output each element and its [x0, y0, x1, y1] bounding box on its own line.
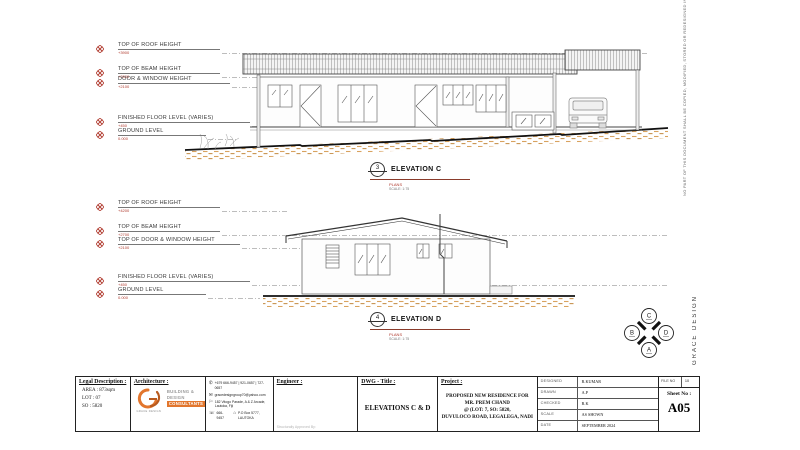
- engineer-cell: Engineer : Structurally Approved By:: [274, 377, 359, 431]
- project-line: MR. PREM CHAND: [441, 401, 534, 408]
- file-no-label: FILE NO: [659, 377, 682, 387]
- meta-row: DATE SEPTEMBER 2024: [538, 421, 659, 431]
- pobox-icon: ⌂: [233, 411, 236, 416]
- architecture-header: Architecture :: [134, 379, 202, 385]
- datum-level-row: DOOR & WINDOW HEIGHT+2100: [96, 76, 230, 90]
- legal-header: Legal Description :: [79, 379, 127, 385]
- elevation-scale: SCALE: 1:75: [389, 337, 470, 342]
- contact-phone: +679 666-9457 | 921-0657 | 727-0657: [215, 381, 270, 390]
- architecture-contacts-cell: ✆ +679 666-9457 | 921-0657 | 727-0657 ✉ …: [206, 377, 274, 431]
- datum-level-row: FINISHED FLOOR LEVEL (VARIES)+450: [96, 274, 250, 288]
- carport-roof: [565, 50, 640, 70]
- location-icon: ⚐: [209, 400, 213, 405]
- title-block: Legal Description : AREA : 873sqm LOT : …: [75, 376, 700, 432]
- sheet-no-label: Sheet No :: [659, 391, 699, 397]
- datum-level-row: TOP OF BEAM HEIGHT+2700: [96, 224, 220, 238]
- compass-letter-bottom: A: [647, 348, 651, 354]
- elevation-title: ELEVATION C: [391, 166, 441, 173]
- engineer-header: Engineer :: [277, 379, 355, 385]
- step: [490, 286, 512, 294]
- callout-number: 3: [376, 165, 379, 171]
- meta-row: SCALE AS SHOWN: [538, 410, 659, 421]
- meta-table-cell: DESIGNED R.KUMAR DRAWN A.P CHECKED R.K S…: [538, 377, 660, 431]
- carport-post: [636, 70, 639, 130]
- level-leader-line: [208, 298, 260, 299]
- callout-number-bubble: 3: [370, 162, 385, 177]
- phone-icon: ✆: [209, 381, 213, 386]
- email-icon: ✉: [209, 393, 213, 398]
- elevation-title: ELEVATION D: [391, 316, 441, 323]
- meta-row: DRAWN A.P: [538, 388, 659, 399]
- project-line: @ (LOT: 7, SO: 5820,: [441, 408, 534, 415]
- file-no-value: 10: [682, 377, 699, 387]
- contact-email: gracedesigngroup70@yahoo.com: [215, 393, 266, 398]
- elevation-key-compass-icon: C B D A: [622, 306, 676, 360]
- datum-marker-icon: [96, 118, 104, 126]
- project-line: DUVULOCO ROAD, LEGALEGA, NADI: [441, 415, 534, 422]
- meta-label: DATE: [538, 421, 578, 431]
- meta-value: AS SHOWN: [578, 410, 659, 420]
- meta-label: DRAWN: [538, 388, 578, 398]
- level-value: +4200: [118, 208, 220, 214]
- fax-icon: ☏: [209, 411, 215, 416]
- meta-value: R.K: [578, 399, 659, 409]
- datum-marker-icon: [96, 240, 104, 248]
- contact-pobox: P.O Box 5777, LAUTOKA: [238, 411, 270, 420]
- sheet-no-value: A05: [659, 400, 699, 416]
- contact-row: ⚐ 182 Vitogo Parade, A & Z Arcade, Lauto…: [209, 400, 270, 409]
- compass-letter-left: B: [630, 331, 634, 337]
- level-value: 0.000: [118, 136, 206, 142]
- legal-so: SO : 5820: [79, 403, 127, 411]
- architecture-logo: GRACE DESIGN: [134, 387, 164, 413]
- drawing-sheet: TOP OF ROOF HEIGHT+3900 TOP OF BEAM HEIG…: [0, 0, 800, 450]
- level-label: TOP OF DOOR & WINDOW HEIGHT: [118, 237, 240, 245]
- meta-label: CHECKED: [538, 399, 578, 409]
- datum-level-row: TOP OF DOOR & WINDOW HEIGHT+2100: [96, 237, 240, 251]
- level-label: TOP OF ROOF HEIGHT: [118, 200, 220, 208]
- earth-hatch: [263, 297, 575, 307]
- meta-label: SCALE: [538, 410, 578, 420]
- legal-lot: LOT : 07: [79, 395, 127, 403]
- elevation-c-drawing: [180, 45, 680, 160]
- level-value: 0.000: [118, 295, 206, 301]
- level-value: +2100: [118, 84, 230, 90]
- level-label: GROUND LEVEL: [118, 287, 206, 295]
- grace-design-logo-icon: [134, 387, 164, 409]
- level-value: +3900: [118, 50, 220, 56]
- dwg-title: ELEVATIONS C & D: [361, 387, 434, 429]
- level-label: TOP OF BEAM HEIGHT: [118, 66, 220, 74]
- level-label: GROUND LEVEL: [118, 128, 206, 136]
- elevation-scale: SCALE: 1:75: [389, 187, 470, 192]
- project-cell: Project : PROPOSED NEW RESIDENCE FOR MR.…: [438, 377, 538, 431]
- legal-area: AREA : 873sqm: [79, 387, 127, 395]
- callout-number: 4: [376, 315, 379, 321]
- copyright-note: NO PART OF THIS DOCUMENT SHALL BE COPIED…: [682, 4, 687, 196]
- engineer-footnote: Structurally Approved By:: [277, 425, 355, 429]
- contact-row: ✉ gracedesigngroup70@yahoo.com: [209, 393, 270, 398]
- project-line: PROPOSED NEW RESIDENCE FOR: [441, 394, 534, 401]
- elevation-d-drawing: [255, 210, 590, 310]
- meta-row: DESIGNED R.KUMAR: [538, 377, 659, 388]
- car: [569, 98, 607, 128]
- contact-row: ✆ +679 666-9457 | 921-0657 | 727-0657: [209, 381, 270, 390]
- project-header: Project :: [441, 379, 534, 385]
- datum-marker-icon: [96, 290, 104, 298]
- elevation-c-callout: 3 ELEVATION C PLANS SCALE: 1:75: [370, 162, 470, 192]
- datum-marker-icon: [96, 227, 104, 235]
- sheet-number-cell: FILE NO 10 Sheet No : A05: [659, 377, 699, 431]
- level-label: FINISHED FLOOR LEVEL (VARIES): [118, 115, 250, 123]
- datum-level-row: GROUND LEVEL0.000: [96, 128, 206, 142]
- datum-level-row: GROUND LEVEL0.000: [96, 287, 206, 301]
- compass-letter-top: C: [647, 314, 652, 320]
- datum-marker-icon: [96, 45, 104, 53]
- logo-caption: GRACE DESIGN: [136, 410, 161, 413]
- post: [257, 75, 260, 147]
- contact-fax: 666-9457: [216, 411, 227, 420]
- meta-value: A.P: [578, 388, 659, 398]
- level-label: DOOR & WINDOW HEIGHT: [118, 76, 230, 84]
- datum-marker-icon: [96, 203, 104, 211]
- architecture-cell: Architecture : GRACE DESIGN BUILDING & D…: [131, 377, 206, 431]
- datum-level-row: FINISHED FLOOR LEVEL (VARIES)+450: [96, 115, 250, 129]
- architecture-tagline: BUILDING & DESIGN CONSULTANTS: [167, 389, 205, 407]
- project-description: PROPOSED NEW RESIDENCE FOR MR. PREM CHAN…: [441, 387, 534, 429]
- level-label: TOP OF BEAM HEIGHT: [118, 224, 220, 232]
- file-number-row: FILE NO 10: [659, 377, 699, 388]
- datum-marker-icon: [96, 277, 104, 285]
- datum-marker-icon: [96, 131, 104, 139]
- meta-label: DESIGNED: [538, 377, 578, 387]
- legal-description-cell: Legal Description : AREA : 873sqm LOT : …: [76, 377, 131, 431]
- tagline-line: CONSULTANTS: [167, 401, 205, 407]
- level-label: TOP OF ROOF HEIGHT: [118, 42, 220, 50]
- dwg-header: DWG - Title :: [361, 379, 434, 385]
- brand-vertical-text: GRACE DESIGN: [692, 303, 698, 365]
- elevation-d-callout: 4 ELEVATION D PLANS SCALE: 1:75: [370, 312, 470, 342]
- contact-address: 182 Vitogo Parade, A & Z Arcade, Lautoka…: [215, 400, 270, 409]
- level-label: FINISHED FLOOR LEVEL (VARIES): [118, 274, 250, 282]
- callout-number-bubble: 4: [370, 312, 385, 327]
- datum-marker-icon: [96, 79, 104, 87]
- meta-row: CHECKED R.K: [538, 399, 659, 410]
- datum-level-row: TOP OF ROOF HEIGHT+3900: [96, 42, 220, 56]
- meta-value: R.KUMAR: [578, 377, 659, 387]
- level-value: +2100: [118, 245, 240, 251]
- contact-row: ☏ 666-9457 ⌂ P.O Box 5777, LAUTOKA: [209, 411, 270, 420]
- dwg-title-cell: DWG - Title : ELEVATIONS C & D: [358, 377, 438, 431]
- datum-level-row: TOP OF ROOF HEIGHT+4200: [96, 200, 220, 214]
- compass-letter-right: D: [664, 331, 669, 337]
- post: [506, 77, 509, 127]
- meta-value: SEPTEMBER 2024: [578, 421, 659, 431]
- main-roof: [243, 54, 577, 74]
